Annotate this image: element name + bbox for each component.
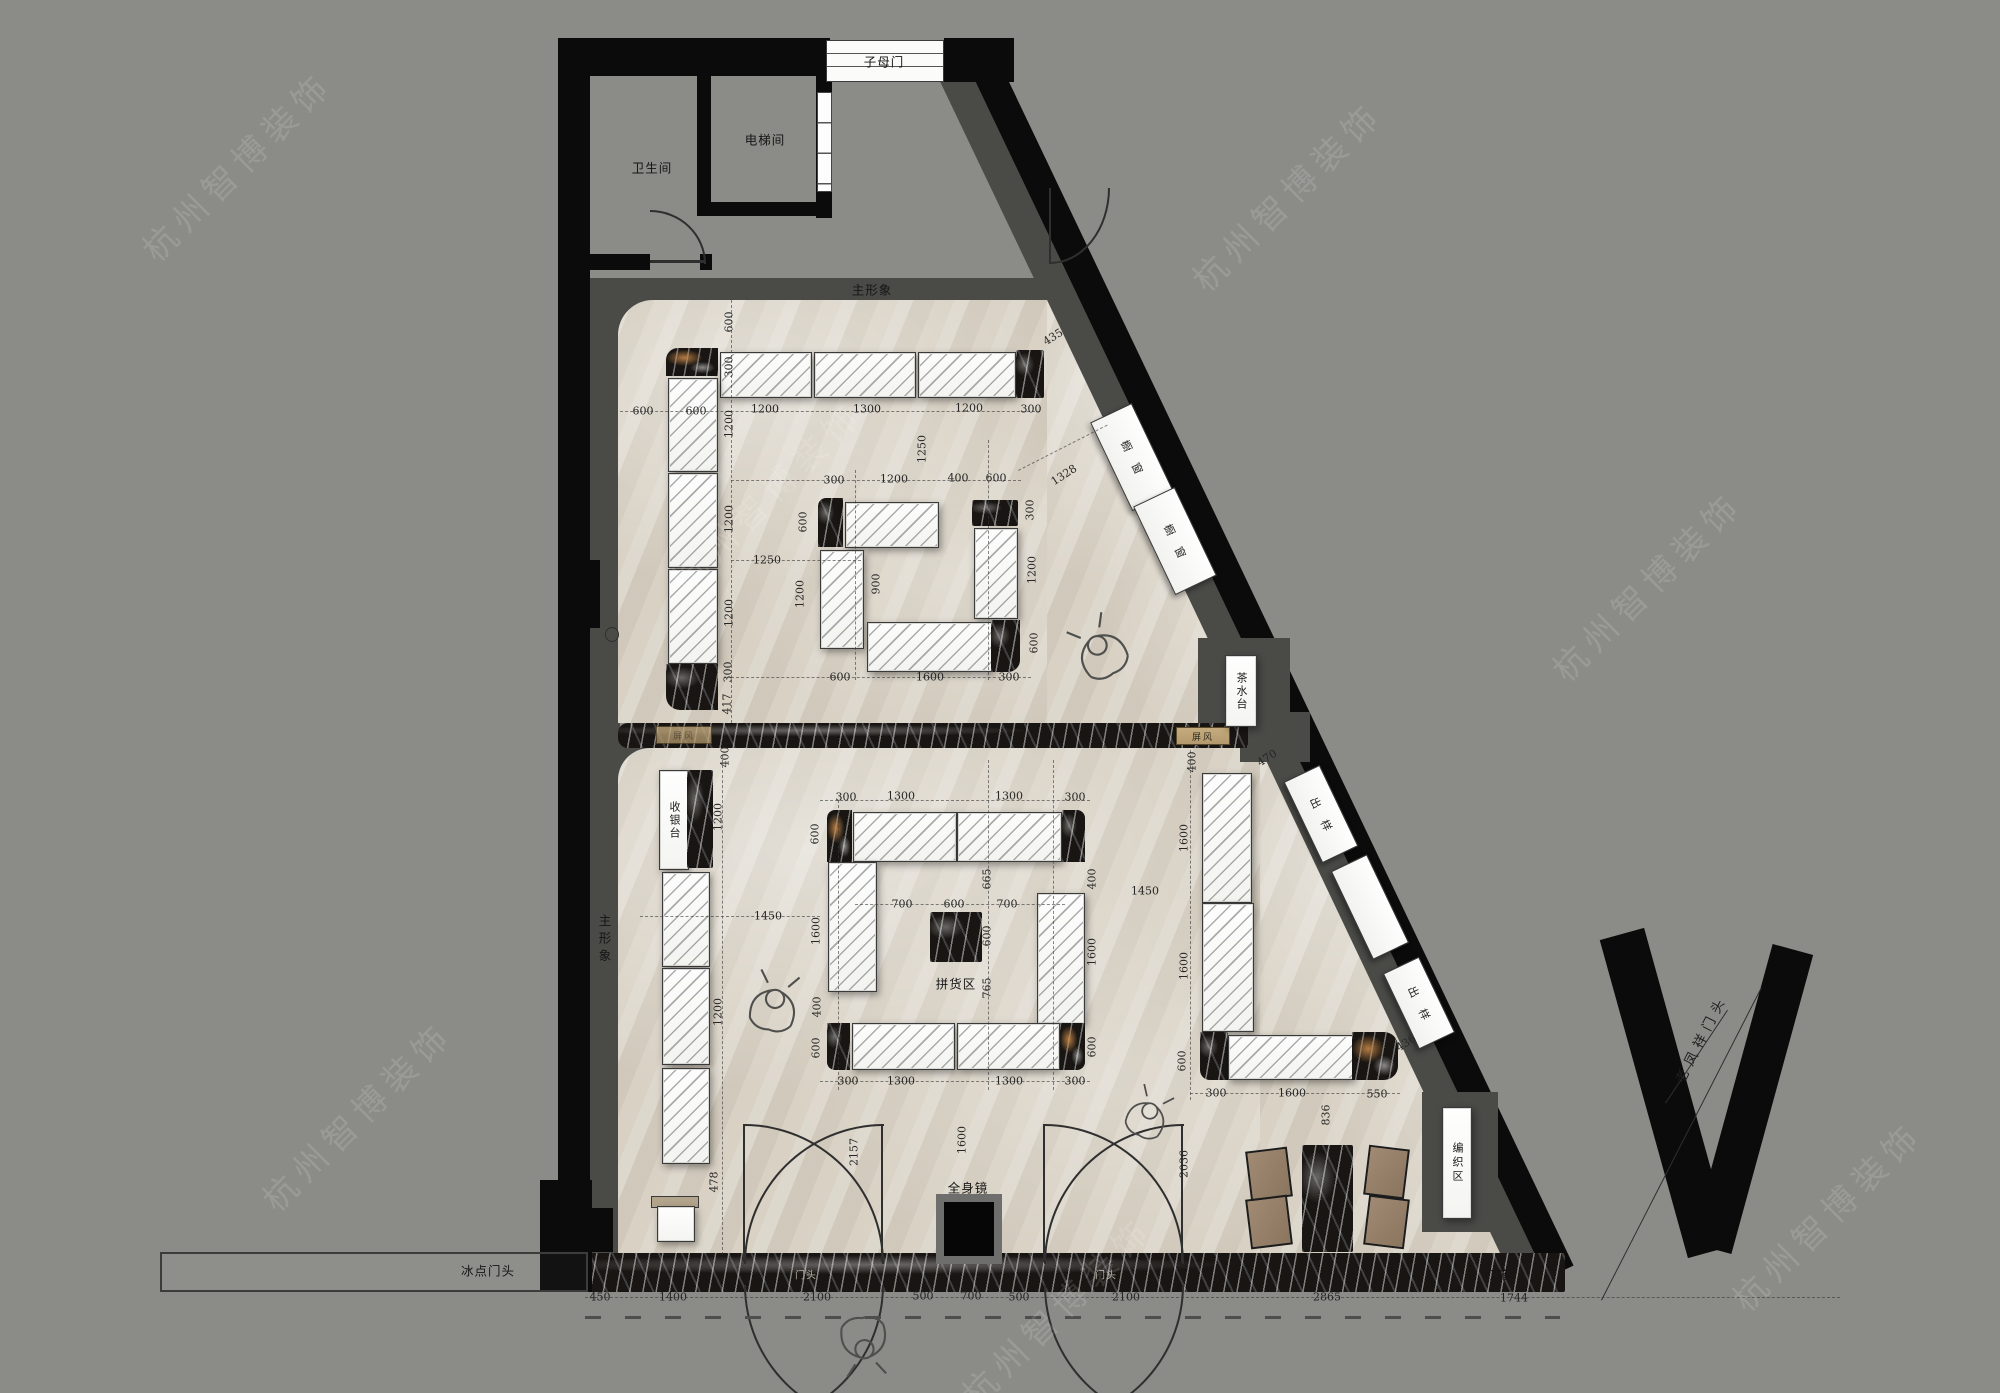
area-label: 子母门 (864, 52, 905, 71)
dashed-line (820, 1081, 1090, 1082)
display-case (1202, 903, 1254, 1032)
table (1302, 1145, 1353, 1252)
dimension-label: 600 (1176, 1051, 1189, 1072)
chair (1245, 1195, 1293, 1250)
tea-station: 茶水台 (1225, 655, 1257, 727)
dimension-label: 1200 (723, 410, 736, 438)
dimension-label: 600 (810, 1038, 823, 1059)
wall-column (560, 560, 600, 628)
dimension-label: 300 (1065, 791, 1086, 804)
display-case (845, 502, 939, 548)
weaving-area-label: 编织区 (1443, 1108, 1471, 1218)
dimension-label: 600 (944, 898, 965, 911)
dashed-line (1053, 760, 1054, 1090)
dimension-label: 300 (1065, 1075, 1086, 1088)
dimension-label: 400 (719, 747, 732, 768)
chair (1363, 1195, 1410, 1250)
dimension-label: 300 (824, 474, 845, 487)
dimension-label: 1450 (754, 910, 782, 923)
watermark-text: 杭州智博装饰 (250, 1008, 463, 1221)
watermark-text: 杭州智博装饰 (1180, 88, 1393, 301)
area-label: 全身镜 (948, 1178, 989, 1197)
dimension-label: 1200 (712, 998, 725, 1026)
marble-corner (1352, 1032, 1398, 1080)
area-label: 老凤祥门头 (1669, 990, 1731, 1086)
dimension-label: 1600 (1278, 1087, 1306, 1100)
toilet-door-arc (650, 210, 706, 264)
dimension-label: 478 (708, 1172, 721, 1193)
dimension-label: 1600 (810, 917, 823, 945)
dimension-label: 400 (1186, 752, 1199, 773)
window-display-label: 橱窗 (1154, 509, 1196, 574)
dimension-label: 700 (961, 1290, 982, 1303)
dimension-label: 300 (1021, 403, 1042, 416)
dimension-label: 1600 (916, 671, 944, 684)
screen-right: 屏风 (1176, 727, 1230, 745)
v-column-right-arm (1691, 944, 1813, 1254)
dimension-label: 1300 (995, 790, 1023, 803)
dimension-label: 1600 (956, 1126, 969, 1154)
toilet-bottom-wall (558, 254, 650, 270)
dimension-label: 550 (1367, 1088, 1388, 1101)
weaving-area: 编织区 (1442, 1107, 1472, 1219)
marble-corner (827, 810, 852, 862)
dimension-label: 1200 (723, 505, 736, 533)
dimension-label: 600 (686, 405, 707, 418)
dashed-line (1190, 750, 1191, 1100)
area-label: 门头 (795, 1267, 817, 1282)
dimension-label: 600 (986, 472, 1007, 485)
dimension-label: 300 (836, 791, 857, 804)
marble-corner (991, 620, 1020, 672)
toilet-door-leaf (650, 260, 704, 263)
marble-corner (1016, 350, 1044, 398)
dashed-line (731, 560, 861, 561)
dimension-label: 1200 (723, 599, 736, 627)
dashed-line (855, 470, 856, 680)
area-label: 电梯间 (745, 130, 786, 149)
room-divider-wall (697, 76, 711, 216)
dimension-label: 2100 (1112, 1291, 1140, 1304)
top-wall (558, 38, 830, 76)
dashed-line (820, 800, 1090, 801)
dimension-label: 1200 (880, 473, 908, 486)
dimension-label: 300 (999, 671, 1020, 684)
display-case (918, 352, 1016, 398)
dimension-label: 836 (1320, 1105, 1333, 1126)
marble-corner (666, 348, 718, 376)
person-figure (728, 958, 821, 1051)
display-case (1037, 893, 1085, 1024)
cashier-marble (687, 770, 713, 868)
display-case (820, 550, 864, 649)
dashed-line (731, 677, 1031, 678)
dimension-label: 600 (809, 824, 822, 845)
left-wall (558, 38, 590, 1292)
display-case (662, 872, 710, 967)
dimension-label: 2100 (803, 1291, 831, 1304)
dimension-label: 300 (723, 357, 736, 378)
dimension-label: 700 (997, 898, 1018, 911)
dimension-label: 1250 (916, 435, 929, 463)
display-case (852, 1023, 955, 1070)
dimension-label: 1300 (887, 1075, 915, 1088)
dimension-label: 1300 (887, 790, 915, 803)
dimension-label: 1400 (659, 1291, 687, 1304)
dimension-label: 600 (633, 405, 654, 418)
window-display-label: 橱窗 (1111, 425, 1153, 490)
dashed-line (585, 1297, 1840, 1298)
display-case (668, 378, 718, 472)
dimension-label: 1600 (1178, 824, 1191, 852)
dimension-label: 600 (1086, 1037, 1099, 1058)
dimension-label: 1200 (955, 402, 983, 415)
dimension-label: 600 (1028, 633, 1041, 654)
marble-corner (972, 500, 1018, 526)
dimension-label: 300 (722, 662, 735, 683)
screen-label: 屏风 (673, 729, 695, 742)
display-case (853, 812, 957, 862)
dashed-line (640, 916, 820, 917)
display-case (867, 622, 993, 672)
display-case (662, 1068, 710, 1164)
corner-wall-step (588, 1208, 613, 1252)
dimension-label: 1450 (1131, 885, 1159, 898)
area-label: 灯箱 (1483, 1265, 1510, 1284)
dimension-label: 1200 (1026, 556, 1039, 584)
dimension-label: 1300 (995, 1075, 1023, 1088)
chair (1363, 1145, 1410, 1200)
marble-corner (1200, 1032, 1228, 1080)
sidewalk-dashes (585, 1316, 1560, 1319)
wall-dot (605, 627, 619, 642)
dimension-label: 300 (838, 1075, 859, 1088)
dimension-label: 600 (981, 926, 994, 947)
screen-label: 屏风 (1192, 730, 1214, 743)
screen-left: 屏风 (656, 726, 712, 744)
dimension-label: 2157 (848, 1138, 861, 1166)
dimension-label: 2036 (1178, 1150, 1191, 1178)
cashier-desk-label: 收银台 (660, 771, 688, 869)
dimension-label: 400 (811, 997, 824, 1018)
display-case (1202, 773, 1252, 903)
dashed-line (838, 800, 839, 1090)
display-case (668, 569, 718, 664)
entry-door-arc (1050, 188, 1110, 264)
area-label: 主形象 (852, 280, 893, 299)
marble-corner (666, 664, 718, 710)
divider-band (618, 723, 1248, 748)
display-case (662, 968, 710, 1065)
elevator-bottom-wall (697, 202, 832, 216)
dimension-label: 400 (948, 472, 969, 485)
dimension-label: 600 (830, 671, 851, 684)
marble-corner (1060, 1023, 1085, 1070)
display-case (974, 528, 1018, 619)
dimension-label: 400 (1086, 869, 1099, 890)
dimension-label: 1200 (751, 403, 779, 416)
dimension-label: 1744 (1500, 1292, 1528, 1305)
area-label: 主形象 (595, 914, 614, 967)
area-label: 拼货区 (936, 974, 977, 993)
dimension-label: 600 (797, 512, 810, 533)
elevator-door (817, 92, 832, 192)
dimension-label: 417 (721, 694, 734, 715)
cashier-desk: 收银台 (659, 770, 689, 870)
icepoint-storefront-band (160, 1252, 588, 1292)
area-label: 门头 (1095, 1267, 1117, 1282)
watermark-text: 杭州智博装饰 (1540, 478, 1753, 691)
dimension-label: 500 (913, 1290, 934, 1303)
dimension-label: 300 (1206, 1087, 1227, 1100)
finish-band-top (590, 278, 1095, 302)
marble-corner (818, 498, 843, 547)
dashed-line (731, 480, 1021, 481)
display-case (668, 473, 718, 568)
dimension-label: 665 (981, 869, 994, 890)
display-case (828, 862, 877, 992)
full-length-mirror (944, 1202, 994, 1256)
dimension-label: 1200 (794, 580, 807, 608)
display-case (957, 812, 1062, 862)
dimension-label: 1600 (1178, 952, 1191, 980)
display-case (957, 1023, 1060, 1070)
dimension-label: 2865 (1313, 1291, 1341, 1304)
tea-station-label: 茶水台 (1226, 656, 1256, 726)
dimension-label: 450 (590, 1291, 611, 1304)
chair (1245, 1147, 1293, 1202)
dimension-label: 1300 (853, 403, 881, 416)
person-figure (822, 1302, 907, 1387)
dimension-label: 1250 (753, 554, 781, 567)
display-case (1228, 1035, 1354, 1080)
dimension-label: 900 (870, 574, 883, 595)
marble-corner (1062, 810, 1085, 862)
center-marble-block (930, 912, 982, 962)
dimension-label: 765 (981, 978, 994, 999)
dimension-label: 300 (1024, 500, 1037, 521)
display-case (814, 352, 916, 398)
area-label: 冰点门头 (461, 1261, 515, 1280)
dimension-label: 700 (892, 898, 913, 911)
top-wall-stub (944, 38, 1014, 82)
floor-plan: 屏风 屏风 橱窗 橱窗 茶水台 收银台 (0, 0, 2000, 1393)
area-label: 卫生间 (632, 158, 673, 177)
stool (657, 1206, 695, 1242)
dimension-label: 500 (1009, 1291, 1030, 1304)
dimension-label: 1200 (712, 803, 725, 831)
watermark-text: 杭州智博装饰 (130, 58, 343, 271)
dimension-label: 1600 (1086, 938, 1099, 966)
dimension-label: 600 (723, 312, 736, 333)
